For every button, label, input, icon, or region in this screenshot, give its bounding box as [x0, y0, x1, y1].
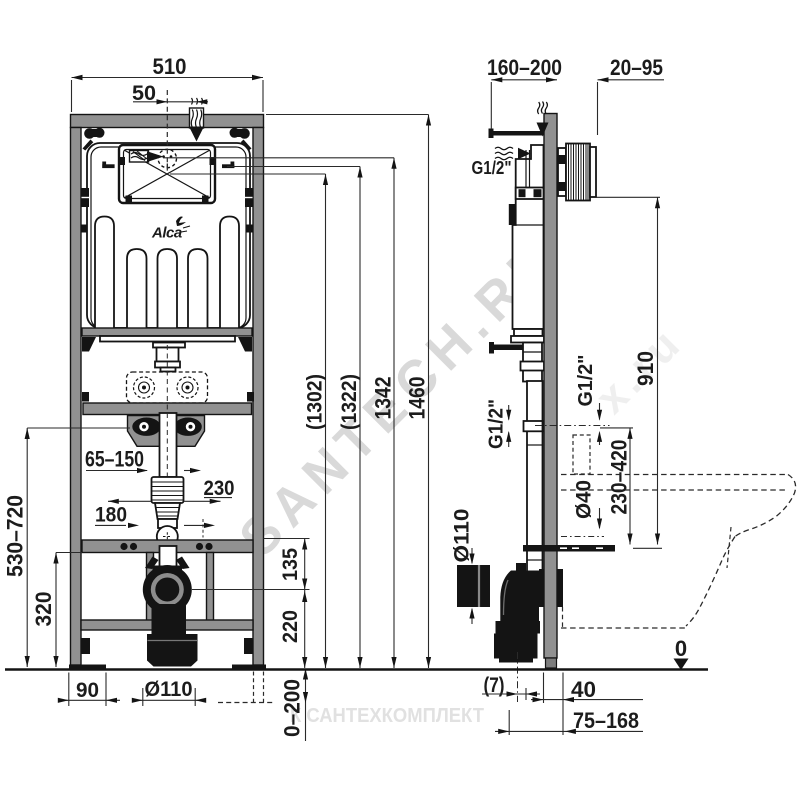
svg-text:230: 230	[204, 477, 235, 500]
svg-text:90: 90	[76, 679, 99, 702]
svg-text:(1322): (1322)	[338, 374, 361, 430]
svg-text:Alca: Alca	[151, 225, 182, 242]
svg-text:0–200: 0–200	[280, 679, 305, 737]
svg-text:1342: 1342	[371, 377, 396, 420]
svg-text:20–95: 20–95	[610, 55, 663, 80]
svg-text:230–420: 230–420	[607, 440, 632, 515]
svg-text:40: 40	[571, 677, 596, 702]
svg-text:Ø110: Ø110	[145, 678, 193, 701]
svg-text:G1/2": G1/2"	[486, 399, 508, 449]
svg-text:910: 910	[633, 351, 658, 386]
svg-text:180: 180	[95, 504, 127, 527]
svg-text:510: 510	[153, 54, 187, 79]
svg-text:160–200: 160–200	[487, 55, 562, 80]
svg-text:65–150: 65–150	[85, 447, 144, 472]
svg-text:530–720: 530–720	[3, 495, 28, 577]
svg-text:G1/2": G1/2"	[472, 158, 512, 178]
svg-text:75–168: 75–168	[573, 708, 639, 733]
svg-text:К САНТЕХКОМПЛЕКТ: К САНТЕХКОМПЛЕКТ	[290, 705, 484, 727]
svg-text:(1302): (1302)	[304, 374, 327, 430]
svg-text:G1/2": G1/2"	[575, 355, 597, 407]
svg-text:0: 0	[675, 636, 687, 661]
svg-text:1460: 1460	[405, 377, 430, 420]
svg-text:Ø40: Ø40	[573, 480, 596, 519]
svg-text:320: 320	[31, 592, 56, 627]
svg-text:220: 220	[279, 610, 302, 643]
svg-text:135: 135	[279, 548, 302, 581]
